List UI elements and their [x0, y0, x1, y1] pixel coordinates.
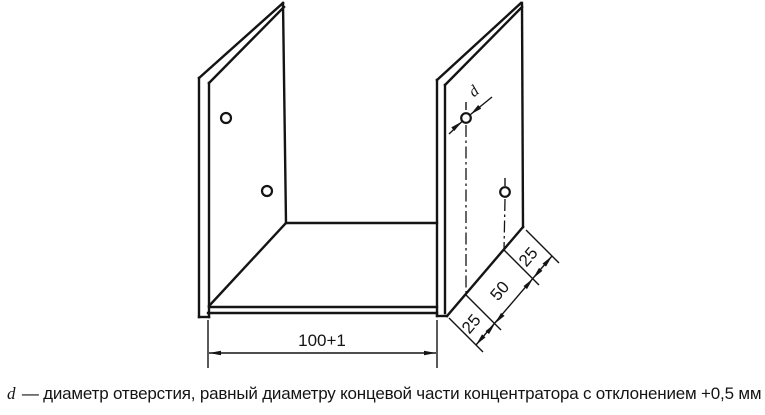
hole	[500, 187, 510, 197]
dim-label-25-near: 25	[458, 311, 485, 338]
caption-text: — диаметр отверстия, равный диаметру кон…	[22, 384, 761, 403]
dim-label-50: 50	[486, 278, 513, 305]
width-dimension: 100+1	[208, 320, 437, 368]
figure: d 25 50 25	[0, 0, 765, 415]
dim-label-d: d	[466, 82, 484, 101]
hole	[221, 113, 231, 123]
centerlines	[466, 102, 505, 294]
dim-label-25-far: 25	[515, 244, 542, 271]
hole	[461, 113, 471, 123]
hole	[262, 186, 272, 196]
technical-drawing: d 25 50 25	[0, 0, 765, 415]
dim-label-width: 100+1	[298, 331, 346, 350]
base-plate	[208, 223, 437, 313]
hole-diameter-dimension: d	[449, 82, 492, 134]
right-plate	[437, 3, 523, 316]
caption-symbol: d	[7, 384, 17, 403]
figure-caption: d — диаметр отверстия, равный диаметру к…	[7, 384, 763, 404]
